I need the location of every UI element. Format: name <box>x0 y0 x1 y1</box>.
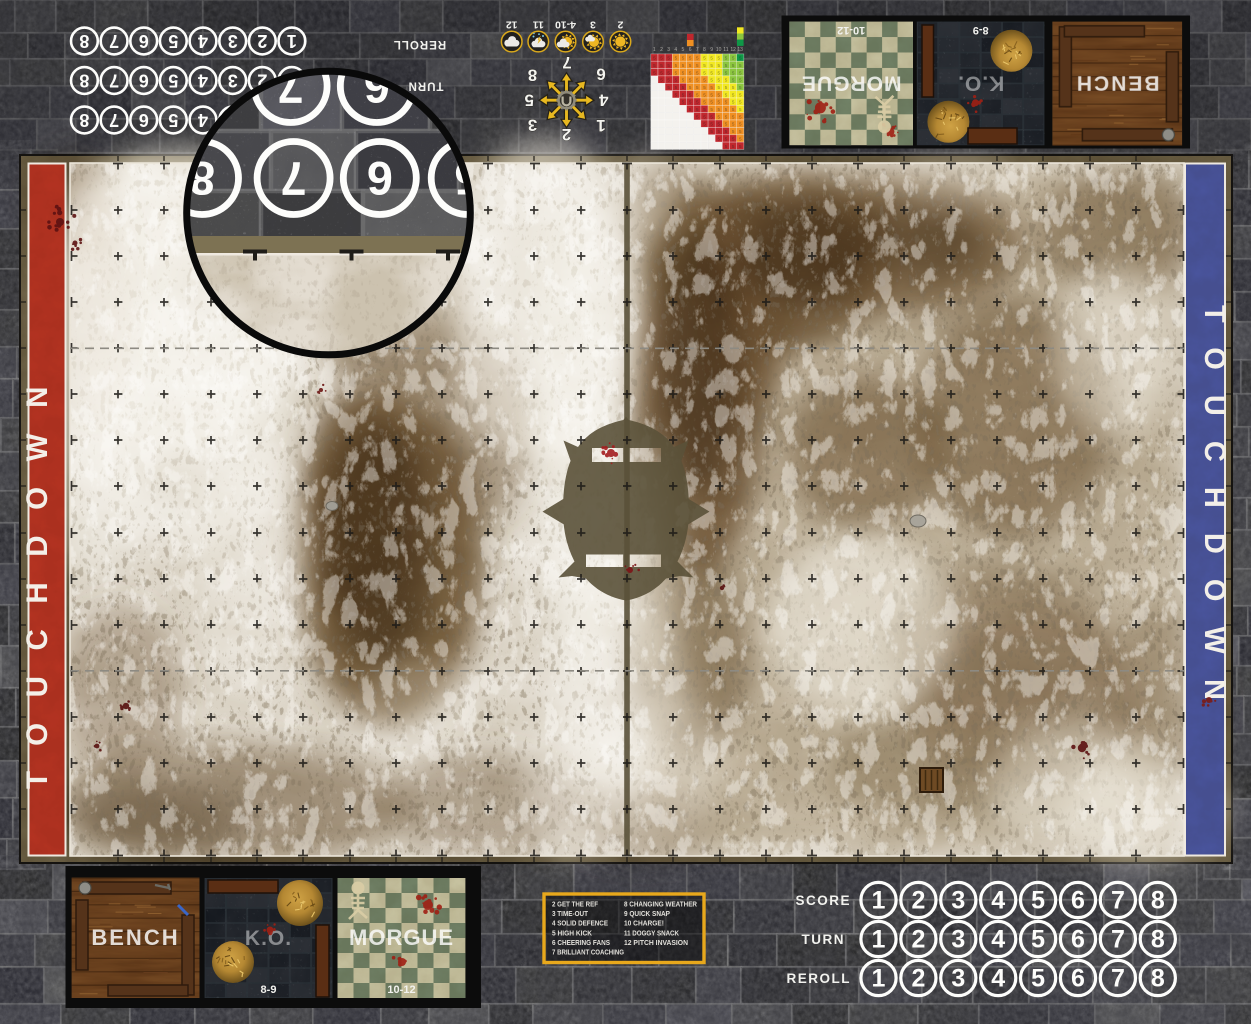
svg-text:5: 5 <box>660 56 663 61</box>
svg-text:5: 5 <box>703 70 706 75</box>
svg-text:5: 5 <box>689 92 692 97</box>
svg-text:1: 1 <box>872 965 886 993</box>
svg-text:5: 5 <box>1031 926 1045 954</box>
svg-text:5: 5 <box>725 136 728 141</box>
svg-text:5: 5 <box>732 85 735 90</box>
svg-text:REROLL: REROLL <box>787 971 852 986</box>
svg-text:5: 5 <box>725 107 728 112</box>
svg-text:4: 4 <box>991 965 1005 993</box>
svg-text:5: 5 <box>718 92 721 97</box>
svg-text:8-9: 8-9 <box>261 984 277 996</box>
svg-text:5: 5 <box>718 56 721 61</box>
svg-text:7: 7 <box>109 70 119 90</box>
svg-text:5: 5 <box>660 70 663 75</box>
svg-text:4: 4 <box>991 887 1005 915</box>
svg-text:6: 6 <box>139 110 149 130</box>
svg-text:7: 7 <box>109 110 119 130</box>
svg-text:2: 2 <box>911 965 925 993</box>
svg-text:5: 5 <box>703 78 706 83</box>
svg-text:5: 5 <box>710 70 713 75</box>
svg-text:6: 6 <box>689 47 692 53</box>
svg-text:5: 5 <box>689 70 692 75</box>
svg-text:5: 5 <box>725 78 728 83</box>
svg-text:5: 5 <box>689 78 692 83</box>
svg-text:5: 5 <box>689 100 692 105</box>
svg-text:5: 5 <box>718 114 721 119</box>
svg-text:1: 1 <box>287 31 297 51</box>
svg-text:MORGUE: MORGUE <box>801 71 902 94</box>
svg-text:5: 5 <box>696 85 699 90</box>
svg-text:1: 1 <box>872 887 886 915</box>
svg-text:5: 5 <box>710 114 713 119</box>
svg-text:5: 5 <box>653 70 656 75</box>
svg-text:5: 5 <box>725 129 728 134</box>
svg-text:5: 5 <box>689 63 692 68</box>
svg-text:3: 3 <box>228 31 238 51</box>
svg-text:5: 5 <box>718 136 721 141</box>
svg-text:5 HIGH KICK: 5 HIGH KICK <box>552 928 593 937</box>
svg-text:5: 5 <box>682 47 685 53</box>
svg-text:1: 1 <box>653 47 656 53</box>
svg-text:5: 5 <box>732 136 735 141</box>
svg-text:5: 5 <box>696 107 699 112</box>
svg-text:3: 3 <box>528 116 537 135</box>
svg-text:4 SOLID DEFENCE: 4 SOLID DEFENCE <box>552 919 608 928</box>
svg-text:5: 5 <box>739 136 742 141</box>
svg-text:5: 5 <box>682 70 685 75</box>
svg-text:5: 5 <box>732 63 735 68</box>
svg-text:7: 7 <box>1111 926 1125 954</box>
svg-text:5: 5 <box>682 78 685 83</box>
svg-text:5: 5 <box>703 85 706 90</box>
svg-text:5: 5 <box>739 107 742 112</box>
svg-text:7: 7 <box>1111 965 1125 993</box>
svg-text:11: 11 <box>723 47 728 53</box>
svg-text:5: 5 <box>725 70 728 75</box>
svg-text:8: 8 <box>703 47 706 53</box>
svg-text:7 BRILLIANT COACHING: 7 BRILLIANT COACHING <box>552 948 624 957</box>
svg-text:3: 3 <box>590 19 596 31</box>
svg-text:5: 5 <box>732 114 735 119</box>
svg-text:5: 5 <box>739 114 742 119</box>
svg-text:REROLL: REROLL <box>393 38 446 50</box>
svg-text:9: 9 <box>710 47 713 53</box>
svg-text:5: 5 <box>667 63 670 68</box>
svg-text:8-9: 8-9 <box>973 24 989 36</box>
svg-text:5: 5 <box>667 70 670 75</box>
svg-text:5: 5 <box>718 78 721 83</box>
svg-text:5: 5 <box>168 110 178 130</box>
svg-text:5: 5 <box>696 100 699 105</box>
svg-text:4: 4 <box>674 47 677 53</box>
svg-text:5: 5 <box>739 70 742 75</box>
svg-text:5: 5 <box>725 122 728 127</box>
svg-text:5: 5 <box>725 85 728 90</box>
svg-text:SCORE: SCORE <box>795 893 851 908</box>
svg-text:10: 10 <box>716 47 722 53</box>
svg-text:5: 5 <box>703 63 706 68</box>
svg-text:5: 5 <box>689 107 692 112</box>
svg-text:4: 4 <box>198 70 208 90</box>
svg-text:12 PITCH INVASION: 12 PITCH INVASION <box>624 938 688 947</box>
svg-text:5: 5 <box>710 56 713 61</box>
svg-text:5: 5 <box>718 70 721 75</box>
svg-text:5: 5 <box>732 144 735 149</box>
svg-text:5: 5 <box>739 85 742 90</box>
svg-text:5: 5 <box>718 100 721 105</box>
svg-text:5: 5 <box>732 107 735 112</box>
svg-text:5: 5 <box>739 129 742 134</box>
svg-text:5: 5 <box>703 100 706 105</box>
svg-text:5: 5 <box>718 129 721 134</box>
svg-text:3: 3 <box>667 47 670 53</box>
svg-text:5: 5 <box>660 78 663 83</box>
svg-text:5: 5 <box>710 78 713 83</box>
svg-text:9 QUICK SNAP: 9 QUICK SNAP <box>624 909 670 918</box>
svg-text:5: 5 <box>675 85 678 90</box>
svg-text:5: 5 <box>1031 965 1045 993</box>
svg-text:5: 5 <box>710 107 713 112</box>
svg-text:5: 5 <box>675 56 678 61</box>
svg-text:5: 5 <box>710 100 713 105</box>
svg-text:5: 5 <box>710 63 713 68</box>
svg-text:5: 5 <box>675 70 678 75</box>
svg-text:5: 5 <box>732 100 735 105</box>
svg-text:8: 8 <box>79 70 89 90</box>
svg-text:6: 6 <box>139 70 149 90</box>
svg-text:5: 5 <box>710 85 713 90</box>
svg-text:5: 5 <box>696 114 699 119</box>
svg-text:5: 5 <box>739 92 742 97</box>
svg-text:5: 5 <box>653 56 656 61</box>
svg-text:5: 5 <box>682 100 685 105</box>
svg-text:8: 8 <box>79 110 89 130</box>
svg-text:BENCH: BENCH <box>1075 71 1160 94</box>
svg-text:6: 6 <box>1071 887 1085 915</box>
svg-text:5: 5 <box>739 78 742 83</box>
svg-text:4: 4 <box>598 91 608 110</box>
svg-text:5: 5 <box>725 114 728 119</box>
svg-text:5: 5 <box>703 122 706 127</box>
svg-text:4-10: 4-10 <box>555 19 576 31</box>
svg-text:5: 5 <box>675 78 678 83</box>
svg-text:5: 5 <box>168 31 178 51</box>
svg-text:2: 2 <box>257 31 267 51</box>
svg-text:10-12: 10-12 <box>837 24 865 36</box>
svg-text:2: 2 <box>911 926 925 954</box>
svg-text:5: 5 <box>718 122 721 127</box>
svg-text:5: 5 <box>696 63 699 68</box>
svg-text:5: 5 <box>703 56 706 61</box>
svg-text:5: 5 <box>739 122 742 127</box>
svg-text:TURN: TURN <box>408 80 444 92</box>
svg-text:10 CHARGE!: 10 CHARGE! <box>624 919 664 928</box>
svg-text:5: 5 <box>696 56 699 61</box>
svg-text:5: 5 <box>675 92 678 97</box>
svg-text:8: 8 <box>528 65 537 84</box>
svg-text:5: 5 <box>725 92 728 97</box>
svg-text:5: 5 <box>739 100 742 105</box>
svg-text:5: 5 <box>710 92 713 97</box>
svg-text:2: 2 <box>660 47 663 53</box>
svg-text:1: 1 <box>872 926 886 954</box>
svg-text:5: 5 <box>682 56 685 61</box>
svg-text:2: 2 <box>911 887 925 915</box>
svg-text:13: 13 <box>737 47 743 53</box>
svg-text:2: 2 <box>617 19 623 31</box>
svg-text:5: 5 <box>703 107 706 112</box>
svg-text:5: 5 <box>703 92 706 97</box>
svg-text:6: 6 <box>1071 965 1085 993</box>
svg-text:5: 5 <box>725 56 728 61</box>
svg-text:6: 6 <box>596 64 605 83</box>
svg-text:5: 5 <box>732 78 735 83</box>
svg-text:7: 7 <box>696 47 699 53</box>
svg-text:5: 5 <box>739 144 742 149</box>
svg-text:5: 5 <box>667 78 670 83</box>
svg-text:6: 6 <box>139 31 149 51</box>
svg-text:BENCH: BENCH <box>91 925 179 950</box>
svg-text:8 CHANGING WEATHER: 8 CHANGING WEATHER <box>624 900 698 909</box>
svg-text:2 GET THE REF: 2 GET THE REF <box>552 900 598 909</box>
svg-text:5: 5 <box>689 85 692 90</box>
svg-text:5: 5 <box>675 63 678 68</box>
svg-text:5: 5 <box>653 63 656 68</box>
svg-text:5: 5 <box>739 56 742 61</box>
svg-text:8: 8 <box>1151 887 1165 915</box>
svg-text:3: 3 <box>951 926 965 954</box>
svg-text:TOUCHDOWN: TOUCHDOWN <box>1198 305 1231 725</box>
svg-text:7: 7 <box>109 31 119 51</box>
svg-text:5: 5 <box>682 92 685 97</box>
svg-text:5: 5 <box>718 85 721 90</box>
svg-text:11 DOGGY SNACK: 11 DOGGY SNACK <box>624 928 680 937</box>
svg-text:3: 3 <box>228 70 238 90</box>
svg-text:5: 5 <box>732 122 735 127</box>
svg-text:5: 5 <box>696 92 699 97</box>
svg-text:5: 5 <box>710 122 713 127</box>
svg-text:5: 5 <box>696 78 699 83</box>
svg-text:4: 4 <box>198 31 208 51</box>
svg-text:5: 5 <box>710 129 713 134</box>
svg-text:5: 5 <box>689 56 692 61</box>
svg-text:12: 12 <box>730 47 736 53</box>
svg-text:3 TIME-OUT: 3 TIME-OUT <box>552 909 588 918</box>
svg-text:5: 5 <box>732 56 735 61</box>
svg-text:5: 5 <box>703 114 706 119</box>
svg-text:5: 5 <box>725 63 728 68</box>
svg-text:8: 8 <box>1151 965 1165 993</box>
svg-text:8: 8 <box>1151 926 1165 954</box>
svg-text:5: 5 <box>525 91 534 110</box>
svg-text:3: 3 <box>951 965 965 993</box>
svg-text:11: 11 <box>533 19 544 31</box>
svg-text:7: 7 <box>562 53 571 72</box>
svg-text:1: 1 <box>596 116 605 135</box>
svg-text:5: 5 <box>696 70 699 75</box>
svg-text:3: 3 <box>951 887 965 915</box>
svg-text:TURN: TURN <box>802 932 846 947</box>
svg-text:5: 5 <box>667 85 670 90</box>
svg-text:7: 7 <box>281 152 307 205</box>
svg-text:5: 5 <box>732 92 735 97</box>
svg-text:10-12: 10-12 <box>387 984 415 996</box>
svg-text:6: 6 <box>1071 926 1085 954</box>
svg-text:4: 4 <box>198 110 208 130</box>
svg-text:5: 5 <box>667 56 670 61</box>
svg-text:5: 5 <box>732 129 735 134</box>
svg-text:5: 5 <box>718 107 721 112</box>
svg-text:5: 5 <box>725 100 728 105</box>
svg-text:5: 5 <box>739 63 742 68</box>
svg-text:2: 2 <box>562 125 571 144</box>
svg-text:K.O.: K.O. <box>957 71 1004 94</box>
svg-text:5: 5 <box>1031 887 1045 915</box>
svg-text:5: 5 <box>682 85 685 90</box>
svg-text:5: 5 <box>732 70 735 75</box>
svg-text:8: 8 <box>79 31 89 51</box>
svg-text:6: 6 <box>367 152 393 205</box>
svg-text:5: 5 <box>718 63 721 68</box>
svg-text:MORGUE: MORGUE <box>349 925 454 950</box>
svg-text:12: 12 <box>506 19 518 31</box>
svg-text:5: 5 <box>725 144 728 149</box>
svg-text:5: 5 <box>168 70 178 90</box>
svg-text:4: 4 <box>991 926 1005 954</box>
svg-text:5: 5 <box>682 63 685 68</box>
svg-text:6 CHEERING FANS: 6 CHEERING FANS <box>552 938 610 947</box>
svg-text:5: 5 <box>660 63 663 68</box>
svg-text:TOUCHDOWN: TOUCHDOWN <box>21 361 54 789</box>
svg-text:7: 7 <box>1111 887 1125 915</box>
